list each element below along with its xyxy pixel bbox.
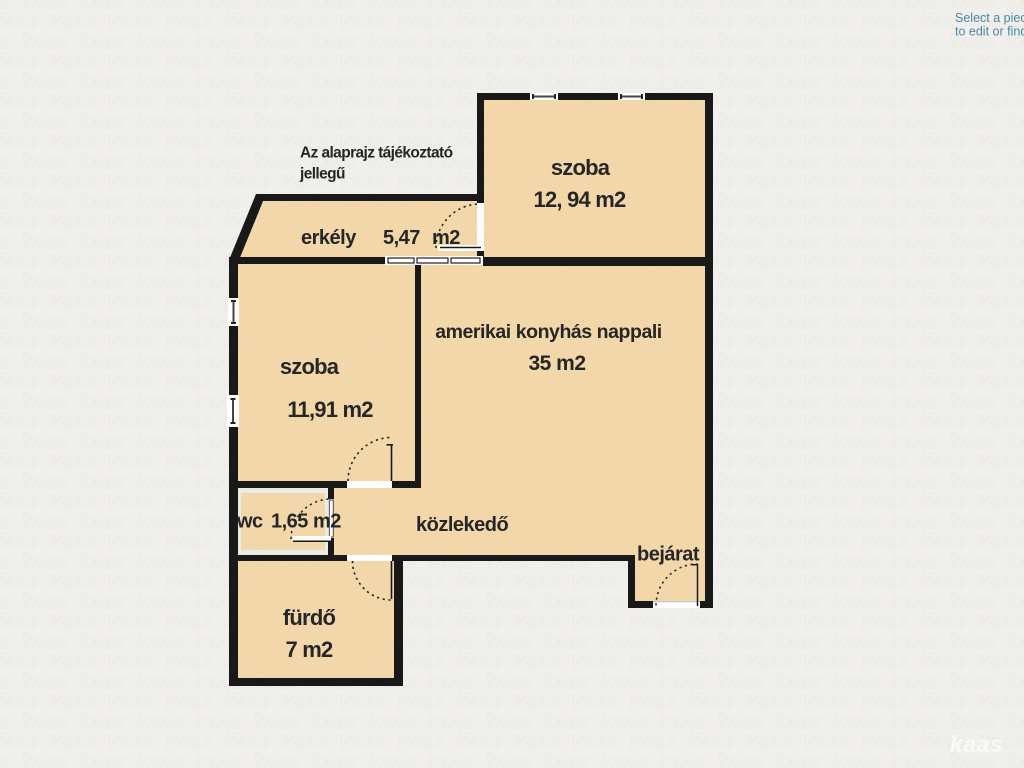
svg-text:wc: wc xyxy=(236,511,263,533)
svg-text:5,47: 5,47 xyxy=(383,227,420,249)
svg-text:fürdő: fürdő xyxy=(283,605,336,630)
svg-text:közlekedő: közlekedő xyxy=(416,514,508,536)
svg-text:12, 94 m2: 12, 94 m2 xyxy=(534,187,626,212)
svg-text:erkély: erkély xyxy=(301,227,357,249)
svg-text:szoba: szoba xyxy=(551,155,611,180)
svg-text:11,91 m2: 11,91 m2 xyxy=(287,397,373,422)
svg-text:kaas: kaas xyxy=(950,731,1003,757)
svg-text:1,65 m2: 1,65 m2 xyxy=(271,511,341,533)
svg-text:jellegű: jellegű xyxy=(299,165,345,182)
svg-text:m2: m2 xyxy=(432,227,460,249)
svg-text:to edit or find i: to edit or find i xyxy=(955,25,1024,39)
svg-text:35 m2: 35 m2 xyxy=(528,352,585,375)
svg-text:Az alaprajz tájékoztató: Az alaprajz tájékoztató xyxy=(300,145,453,162)
svg-text:bejárat: bejárat xyxy=(637,544,700,566)
svg-text:szoba: szoba xyxy=(280,354,340,379)
svg-text:Select a piece: Select a piece xyxy=(955,11,1024,25)
svg-text:7 m2: 7 m2 xyxy=(286,637,334,662)
svg-text:amerikai konyhás nappali: amerikai konyhás nappali xyxy=(435,321,662,343)
